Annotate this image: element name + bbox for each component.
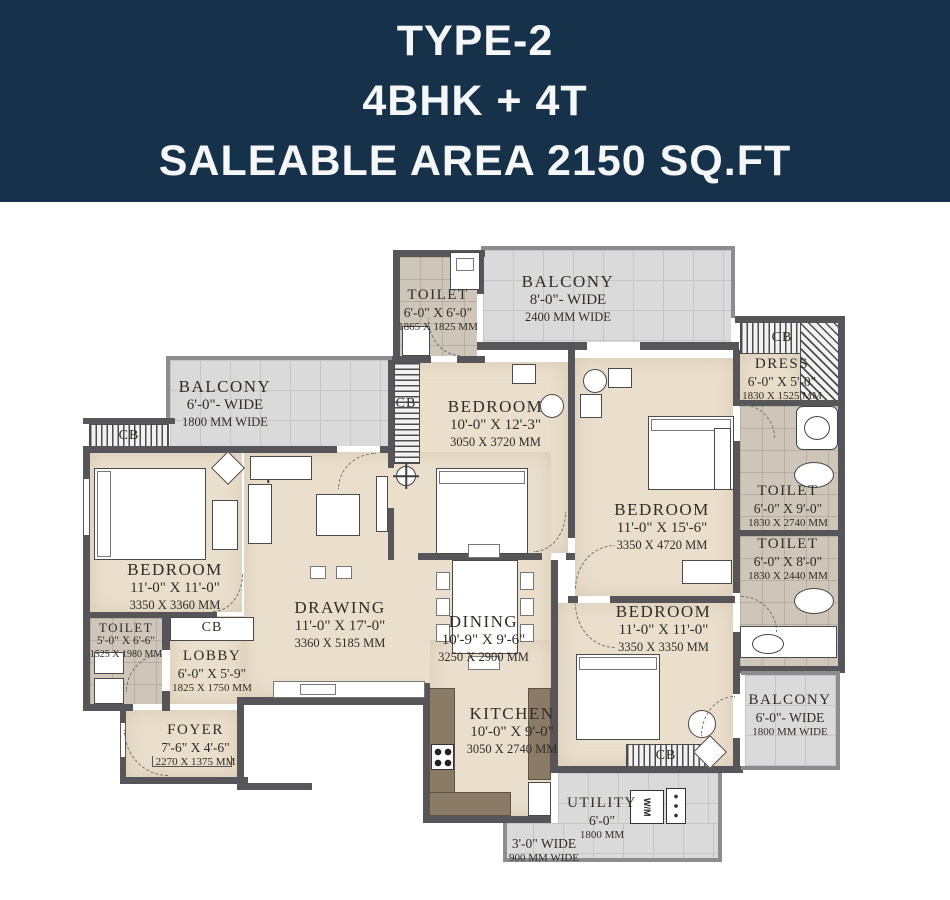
room-label-bedroom-left: BEDROOM 11'-0" X 11'-0" 3350 X 3360 MM <box>96 560 254 612</box>
utility-wall <box>718 773 722 862</box>
wc-fixture <box>794 588 834 614</box>
room-name: TOILET <box>736 536 840 554</box>
room-dim-ft: 8'-0"- WIDE <box>468 292 668 310</box>
wall <box>120 777 248 784</box>
wall <box>393 356 431 363</box>
wall <box>566 553 575 560</box>
dresser <box>682 560 732 584</box>
wall <box>388 508 394 560</box>
room-dim-ft: 6'-0"- WIDE <box>740 710 840 726</box>
room-dim-mm: 3250 X 2900 MM <box>406 650 561 665</box>
room-dim-mm: 2270 X 1375 MM <box>128 756 263 769</box>
room-dim-ft: 6'-0"- WIDE <box>125 397 325 415</box>
room-dim-ft: 6'-0" <box>552 813 652 829</box>
room-dim-ft: 6'-0" X 8'-0" <box>736 554 840 570</box>
room-dim-mm: 1830 X 1525 MM <box>726 390 838 403</box>
room-label-utility: UTILITY 6'-0" 1800 MM <box>552 795 652 842</box>
wall <box>568 596 578 603</box>
room-dim-mm: 3050 X 3720 MM <box>418 435 573 450</box>
room-dim-mm: 3360 X 5185 MM <box>262 636 418 651</box>
rug-tile <box>310 566 326 579</box>
balcony-wall <box>481 246 735 250</box>
sofa <box>248 484 272 544</box>
bed-pillow <box>439 471 525 484</box>
chair <box>436 572 450 590</box>
title-banner: TYPE-2 4BHK + 4T SALEABLE AREA 2150 SQ.F… <box>0 0 950 202</box>
wc-fixture <box>94 678 124 704</box>
shaft-inner <box>456 258 474 271</box>
room-label-dress: DRESS 6'-0" X 5'-0" 1830 X 1525 MM <box>726 356 838 403</box>
wall <box>551 766 743 773</box>
kitchen-counter <box>429 792 511 816</box>
cupboard-label: CB <box>652 748 680 764</box>
room-dim-ft: 10'-0" X 9'-0" <box>438 724 586 742</box>
plan-config-title: 4BHK + 4T <box>362 71 587 131</box>
cupboard-label: CB <box>393 396 419 412</box>
room-label-kitchen: KITCHEN 10'-0" X 9'-0" 3050 X 2740 MM <box>438 704 586 756</box>
room-name: BALCONY <box>740 692 840 710</box>
room-dim-ft: 6'-0" X 5'-9" <box>152 666 272 682</box>
room-dim-mm: 1800 MM WIDE <box>740 726 840 739</box>
chair <box>608 368 632 388</box>
room-dim-mm: 1800 MM WIDE <box>125 415 325 430</box>
bed-pillow <box>579 657 657 670</box>
fan-icon <box>396 466 416 486</box>
wall <box>237 697 429 705</box>
room-name: UTILITY <box>552 795 652 813</box>
coffee-table <box>316 494 360 536</box>
rug-tile <box>336 566 352 579</box>
room-dim-ft: 3'-0" WIDE <box>494 836 594 852</box>
room-label-toilet-right-lower: TOILET 6'-0" X 8'-0" 1830 X 2440 MM <box>736 536 840 583</box>
chair <box>520 572 534 590</box>
dresser <box>212 500 238 550</box>
utility-appliance <box>666 788 686 824</box>
wall <box>83 446 337 453</box>
basin-bowl <box>804 416 830 440</box>
chair <box>580 394 602 418</box>
chair <box>512 364 536 384</box>
room-label-balcony-bottom: BALCONY 6'-0"- WIDE 1800 MM WIDE <box>740 692 840 739</box>
room-label-toilet-right-upper: TOILET 6'-0" X 9'-0" 1830 X 2740 MM <box>736 483 840 530</box>
room-name: BEDROOM <box>418 397 573 417</box>
sofa <box>250 456 312 480</box>
balcony-wall <box>731 246 735 318</box>
room-name: DRESS <box>726 356 838 374</box>
kitchen-counter-strip <box>273 681 425 698</box>
room-dim-mm: 3350 X 4720 MM <box>583 538 741 553</box>
plan-area-title: SALEABLE AREA 2150 SQ.FT <box>159 131 792 191</box>
room-dim-mm: 3350 X 3360 MM <box>96 598 254 613</box>
room-name: DRAWING <box>262 598 418 618</box>
room-dim-ft: 10'-9" X 9'-6" <box>406 632 561 650</box>
cupboard-label: CB <box>115 428 143 444</box>
plan-type-title: TYPE-2 <box>397 11 554 71</box>
balcony-wall <box>741 766 840 770</box>
round-table <box>583 369 607 393</box>
room-label-bedroom-top: BEDROOM 10'-0" X 12'-3" 3050 X 3720 MM <box>418 397 573 449</box>
room-name: BEDROOM <box>583 500 741 520</box>
bed-pillow <box>97 471 111 557</box>
wardrobe <box>714 428 731 490</box>
room-label-bedroom-bottom: BEDROOM 11'-0" X 11'-0" 3350 X 3350 MM <box>586 602 741 654</box>
balcony-wall <box>166 356 392 360</box>
room-dim-ft: 6'-0" X 5'-0" <box>726 374 838 390</box>
room-name: LOBBY <box>152 648 272 666</box>
cupboard-label: CB <box>198 620 226 636</box>
room-label-bedroom-right: BEDROOM 11'-0" X 15'-6" 3350 X 4720 MM <box>583 500 741 552</box>
wall <box>735 316 845 323</box>
sink <box>300 684 336 695</box>
room-name: BALCONY <box>125 377 325 397</box>
room-dim-ft: 7'-6" X 4'-6" <box>128 740 263 756</box>
wall <box>423 816 551 823</box>
tv-unit <box>376 476 388 532</box>
room-name: KITCHEN <box>438 704 586 724</box>
room-label-balcony-top: BALCONY 8'-0"- WIDE 2400 MM WIDE <box>468 272 668 324</box>
room-dim-ft: 5'-0" X 6'-6" <box>76 635 176 649</box>
room-dim-mm: 1830 X 2440 MM <box>736 570 840 583</box>
wall <box>640 342 739 350</box>
wall <box>477 342 587 350</box>
room-name: TOILET <box>736 483 840 501</box>
room-dim-ft: 6'-0" X 9'-0" <box>736 501 840 517</box>
room-name: TOILET <box>76 620 176 635</box>
cupboard-label: CB <box>768 330 796 346</box>
room-dim-mm: 3350 X 3350 MM <box>586 640 741 655</box>
room-label-drawing: DRAWING 11'-0" X 17'-0" 3360 X 5185 MM <box>262 598 418 650</box>
wall <box>457 356 485 363</box>
room-label-balcony-left: BALCONY 6'-0"- WIDE 1800 MM WIDE <box>125 377 325 429</box>
room-label-passage: 3'-0" WIDE 900 MM WIDE <box>494 836 594 865</box>
room-label-foyer: FOYER 7'-6" X 4'-6" 2270 X 1375 MM <box>128 722 263 769</box>
cupboard-mid <box>394 362 420 464</box>
room-dim-ft: 10'-0" X 12'-3" <box>418 417 573 435</box>
wall <box>237 783 312 790</box>
room-label-lobby: LOBBY 6'-0" X 5'-9" 1825 X 1750 MM <box>152 648 272 695</box>
window <box>83 478 90 536</box>
balcony-wall <box>741 671 840 675</box>
floor-plan-page: TYPE-2 4BHK + 4T SALEABLE AREA 2150 SQ.F… <box>0 0 950 900</box>
room-dim-ft: 11'-0" X 15'-6" <box>583 520 741 538</box>
room-name: DINING <box>406 612 561 632</box>
room-name: FOYER <box>128 722 263 740</box>
room-dim-mm: 900 MM WIDE <box>494 852 594 865</box>
room-label-dining: DINING 10'-9" X 9'-6" 3250 X 2900 MM <box>406 612 561 664</box>
room-dim-ft: 11'-0" X 11'-0" <box>586 622 741 640</box>
wall <box>388 356 394 468</box>
chair <box>468 544 500 558</box>
wall <box>733 666 740 694</box>
room-dim-mm: 1825 X 1750 MM <box>152 682 272 695</box>
room-dim-mm: 3050 X 2740 MM <box>438 742 586 757</box>
room-dim-mm: 1830 X 2740 MM <box>736 517 840 530</box>
room-name: BEDROOM <box>96 560 254 580</box>
room-dim-ft: 11'-0" X 11'-0" <box>96 580 254 598</box>
room-name: BEDROOM <box>586 602 741 622</box>
fridge <box>528 782 551 816</box>
basin-bowl <box>752 634 784 654</box>
room-dim-mm: 2400 MM WIDE <box>468 310 668 325</box>
room-dim-ft: 11'-0" X 17'-0" <box>262 618 418 636</box>
room-name: BALCONY <box>468 272 668 292</box>
